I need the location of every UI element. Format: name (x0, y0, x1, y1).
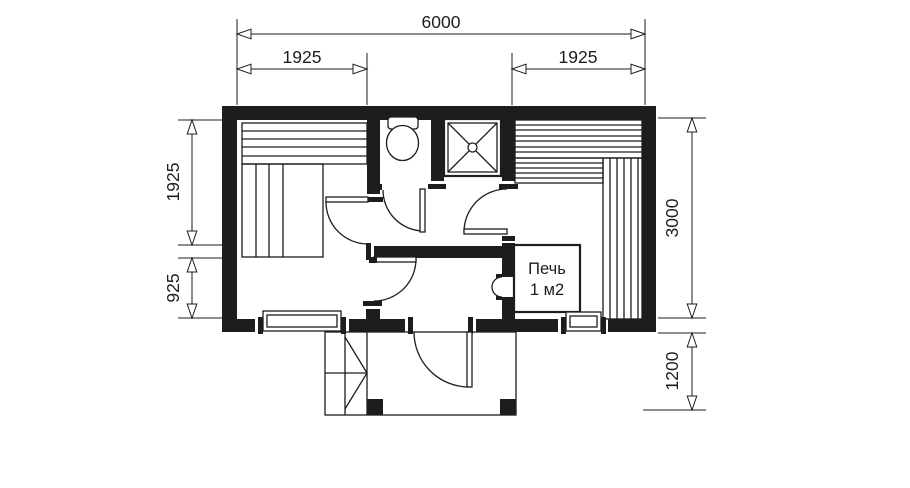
wall-top (222, 106, 656, 120)
door-hall-leaf (374, 257, 416, 262)
shower-drain (468, 143, 477, 152)
toilet (387, 117, 419, 161)
dim-porch-depth-label: 1200 (662, 351, 682, 390)
dim-main-height-label: 3000 (662, 198, 682, 237)
doors (326, 189, 507, 387)
stove-label-line2: 1 м2 (530, 281, 564, 299)
window-left (263, 311, 341, 331)
wall-wc (431, 120, 444, 181)
sauna-bench-side (603, 158, 642, 319)
wall-middle (374, 246, 515, 258)
dim-left-upper-label: 1925 (163, 163, 183, 202)
dim-right-span-label: 1925 (559, 47, 598, 67)
door-washing-room-leaf (326, 197, 368, 202)
dim-left-span-label: 1925 (283, 47, 322, 67)
door-sauna-leaf (464, 229, 507, 234)
porch-step-arrow-upper (345, 337, 367, 373)
stove: Печь 1 м2 (514, 245, 580, 312)
door-sauna (464, 189, 507, 234)
wall-right (642, 106, 656, 332)
bench-horizontal (242, 123, 367, 164)
porch (325, 332, 516, 415)
door-entrance-leaf (467, 332, 472, 387)
dimension-arrows (187, 29, 697, 410)
floor-plan-svg: 6000 1925 1925 1925 925 3000 1200 (0, 0, 910, 488)
door-wc-leaf (420, 189, 425, 232)
stove-outline (514, 245, 580, 312)
door-entrance (414, 332, 472, 387)
door-wc (383, 189, 425, 232)
wall-left (222, 106, 237, 332)
door-washing-room (326, 197, 368, 244)
sauna-bench-lower (515, 158, 603, 183)
toilet-bowl (387, 126, 419, 161)
stove-hatch-arc (492, 277, 502, 297)
washing-room-benches (242, 123, 367, 257)
wall-sauna (502, 120, 515, 181)
stove-label-line1: Печь (528, 260, 566, 278)
door-hall (369, 257, 416, 301)
shower-tray (444, 119, 501, 176)
dim-left-lower-label: 925 (163, 273, 183, 302)
wall-washroom (367, 120, 380, 194)
porch-step-arrow-lower (345, 373, 367, 409)
window-right (566, 312, 601, 331)
floor-plan: 6000 1925 1925 1925 925 3000 1200 (0, 0, 910, 488)
witness-lines (178, 19, 706, 410)
porch-post-left (367, 399, 383, 415)
porch-post-right (500, 399, 516, 415)
dim-total-width-label: 6000 (422, 12, 461, 32)
